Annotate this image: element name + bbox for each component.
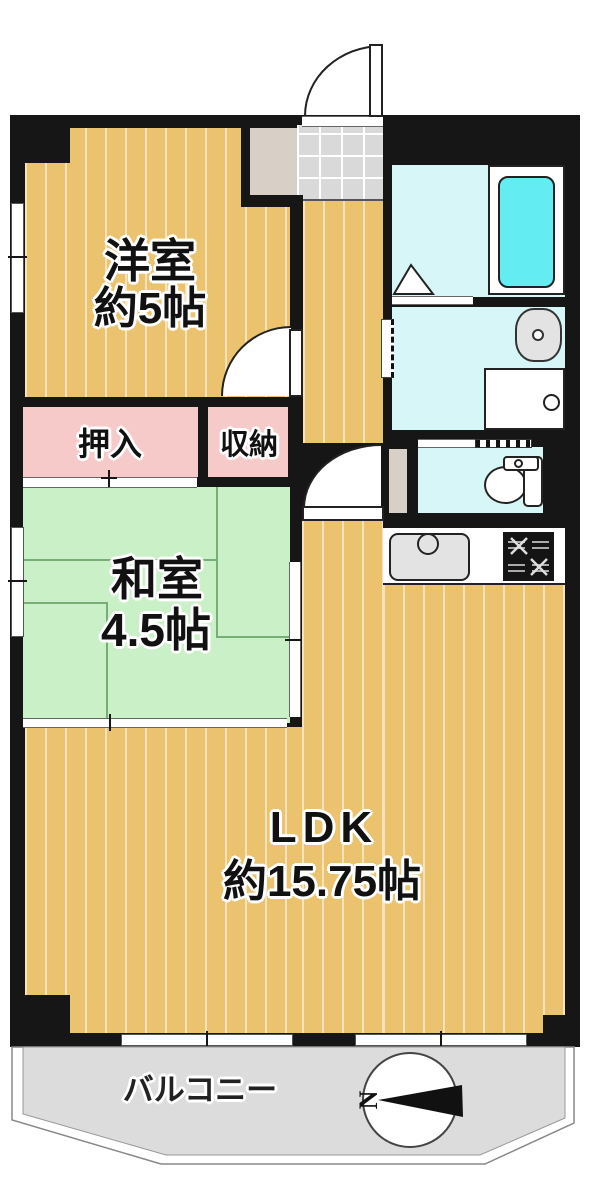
room-ldk-floor (302, 521, 383, 1033)
entry-shoe-cabinet (250, 128, 297, 196)
toilet-bowl (484, 466, 527, 504)
wall-closet-left (241, 125, 250, 196)
wall-below-shoe-cabinet (241, 195, 303, 207)
entry-genkan-tile (297, 125, 383, 201)
entrance-door-leaf (369, 44, 383, 117)
label-shunou: 収納 (220, 421, 278, 463)
gas-stove (503, 532, 554, 581)
tatami-line (23, 602, 108, 604)
threshold-tick (285, 639, 302, 641)
wall-corner-bottom-right (543, 1015, 580, 1047)
tatami-line (216, 487, 218, 638)
bath-door-mark (392, 263, 436, 297)
floor-plan: N 洋室 約5帖 押入 収納 和室 4.5帖 LDK 約15.75帖 バルコニー (0, 0, 600, 1191)
washbasin-drain (532, 329, 544, 341)
north-label: N (357, 1090, 383, 1109)
toilet-button (514, 459, 523, 468)
wall-corner-top-left (10, 115, 70, 163)
toilet-vent-dashes (475, 439, 532, 448)
bathtub (498, 176, 555, 288)
hallway-floor (303, 201, 383, 443)
entrance-threshold (302, 116, 383, 127)
balcony-outline (8, 1046, 586, 1170)
threshold-tick (109, 714, 111, 731)
room-ldk-floor (383, 585, 565, 1033)
threshold-tick (101, 477, 117, 479)
window-japanese-left (11, 527, 24, 637)
label-western-size: 約5帖 (94, 272, 206, 336)
window-mullion (8, 580, 27, 582)
label-japanese-size: 4.5帖 (101, 594, 211, 660)
toilet-threshold (418, 439, 475, 448)
kitchen-faucet (417, 533, 439, 555)
label-oshiire: 押入 (78, 419, 142, 465)
pipe-space-niche (389, 449, 407, 513)
wall-corner-bottom-left (10, 995, 70, 1047)
washing-machine-drain (543, 394, 560, 411)
label-balcony: バルコニー (123, 1065, 277, 1110)
window-western-left (11, 203, 24, 313)
washroom-folding-door (381, 319, 394, 378)
western-door-leaf (289, 329, 303, 397)
ldk-door-leaf (302, 506, 384, 521)
bathroom-threshold (392, 296, 473, 305)
fusuma-japanese-south (23, 718, 287, 728)
window-mullion (8, 256, 27, 258)
label-ldk-size: 約15.75帖 (223, 845, 421, 909)
compass: N (357, 1048, 469, 1158)
tatami-line (216, 636, 290, 638)
